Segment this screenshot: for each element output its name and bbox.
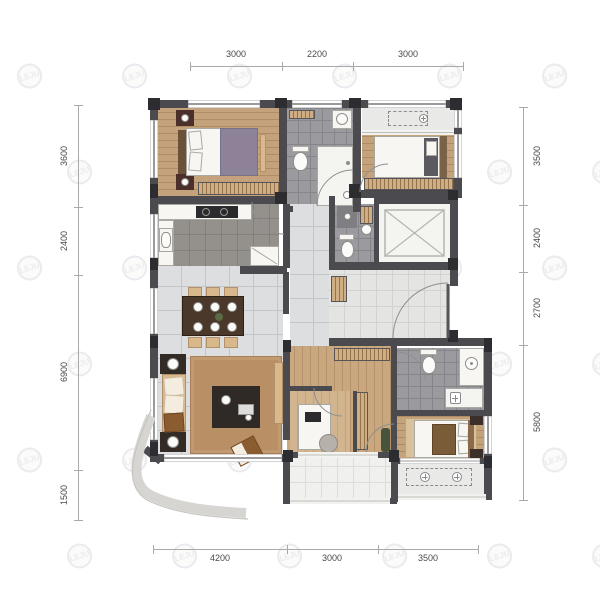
floor-plan-page: LEJU乐居LEJU乐居LEJU乐居LEJU乐居LEJU乐居LEJU乐居LEJU… — [0, 0, 600, 600]
dim-label-left-1: 3600 — [59, 146, 69, 166]
dim-label-right-4: 5800 — [532, 412, 542, 432]
dim-label-right-3: 2700 — [532, 298, 542, 318]
dim-label-top-3: 3000 — [398, 49, 418, 59]
dimension-annotations: 3000 2200 3000 3600 2400 6900 1500 3500 … — [0, 0, 600, 600]
dim-label-right-2: 2400 — [532, 228, 542, 248]
dim-label-bottom-3: 3500 — [418, 553, 438, 563]
dim-label-right-1: 3500 — [532, 146, 542, 166]
dim-label-bottom-2: 3000 — [322, 553, 342, 563]
dim-label-left-2: 2400 — [59, 231, 69, 251]
dim-label-left-4: 1500 — [59, 485, 69, 505]
dim-label-bottom-1: 4200 — [210, 553, 230, 563]
dim-label-left-3: 6900 — [59, 362, 69, 382]
dim-label-top-2: 2200 — [307, 49, 327, 59]
dim-label-top-1: 3000 — [226, 49, 246, 59]
